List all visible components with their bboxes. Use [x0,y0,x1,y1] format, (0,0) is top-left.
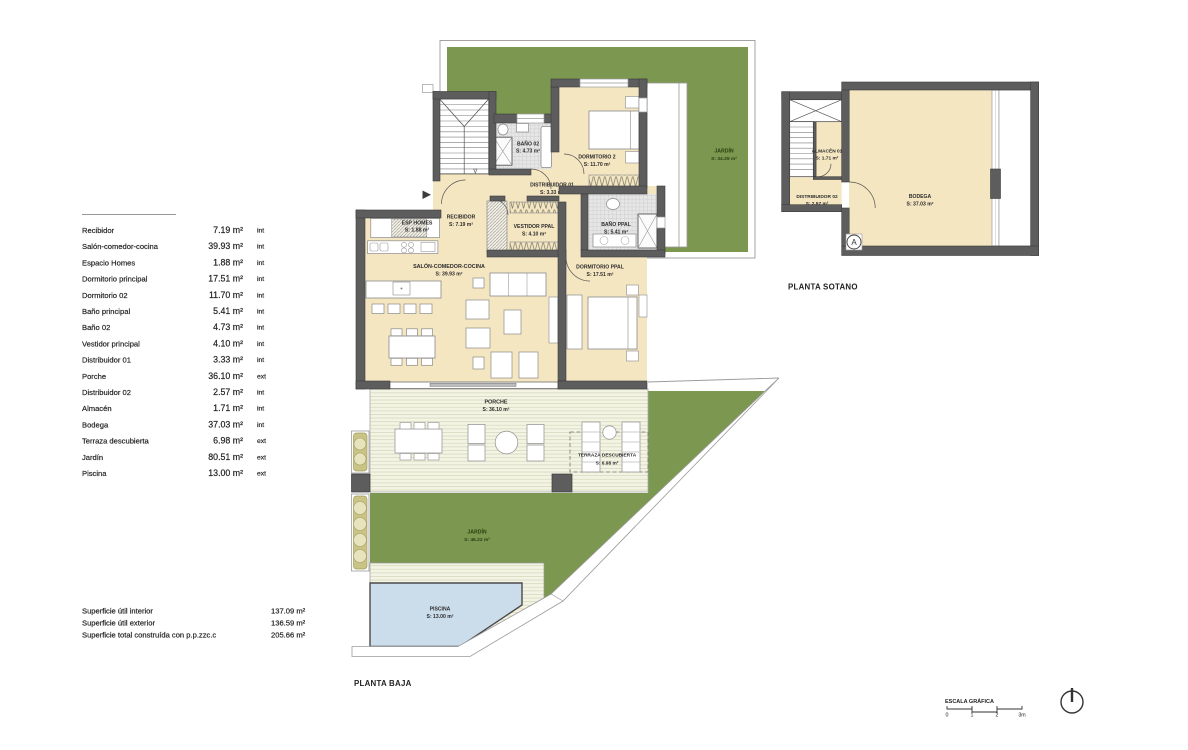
svg-text:2: 2 [996,713,999,719]
svg-text:BAÑO 02: BAÑO 02 [517,141,539,148]
svg-text:1.88 m²: 1.88 m² [213,257,243,267]
svg-text:Baño 02: Baño 02 [82,323,110,332]
svg-text:7.19 m²: 7.19 m² [213,225,243,235]
svg-text:S: 1.71 m²: S: 1.71 m² [816,156,839,162]
svg-text:Recibidor: Recibidor [82,226,115,235]
svg-text:Baño principal: Baño principal [82,307,130,316]
svg-text:Espacio Homes: Espacio Homes [82,258,135,267]
svg-text:int: int [257,292,264,299]
svg-text:Piscina: Piscina [82,469,107,478]
svg-text:S: 11.70 m²: S: 11.70 m² [584,162,611,168]
svg-text:int: int [257,309,264,316]
svg-text:BODEGA: BODEGA [909,194,932,200]
svg-text:Superficie útil interior: Superficie útil interior [82,607,153,616]
svg-text:S: 17.51 m²: S: 17.51 m² [587,272,614,278]
svg-text:S: 13.00 m²: S: 13.00 m² [427,614,454,620]
svg-text:1: 1 [971,713,974,719]
svg-text:Vestidor principal: Vestidor principal [82,339,140,348]
svg-text:S: 34.29 m²: S: 34.29 m² [711,156,737,162]
svg-text:Dormitorio principal: Dormitorio principal [82,275,148,284]
svg-text:3.33 m²: 3.33 m² [213,355,243,365]
svg-text:int: int [257,357,264,364]
svg-text:int: int [257,390,264,397]
svg-text:int: int [257,422,264,429]
svg-text:PLANTA BAJA: PLANTA BAJA [354,679,412,688]
svg-text:int: int [257,260,264,267]
svg-text:DISTRIBUIDOR 02: DISTRIBUIDOR 02 [796,194,838,200]
svg-text:int: int [257,406,264,413]
svg-text:137.09 m²: 137.09 m² [271,607,306,616]
svg-text:5.41 m²: 5.41 m² [213,306,243,316]
svg-text:VESTIDOR PPAL: VESTIDOR PPAL [514,224,555,230]
svg-text:S: 1.88 m²: S: 1.88 m² [405,228,430,234]
svg-text:6.98 m²: 6.98 m² [213,436,243,446]
svg-text:SALÓN-COMEDOR-COCINA: SALÓN-COMEDOR-COCINA [413,262,485,270]
svg-text:S: 5.41 m²: S: 5.41 m² [604,230,628,236]
svg-text:int: int [257,276,264,283]
svg-text:S: 39.93 m²: S: 39.93 m² [436,272,463,278]
svg-text:S: 7.19 m²: S: 7.19 m² [449,222,473,228]
svg-text:ext: ext [257,438,266,445]
svg-text:37.03 m²: 37.03 m² [208,419,243,429]
svg-text:S: 6.98 m²: S: 6.98 m² [596,461,619,467]
svg-text:Bodega: Bodega [82,420,109,429]
svg-text:80.51 m²: 80.51 m² [208,452,243,462]
svg-text:Distribuidor 02: Distribuidor 02 [82,388,131,397]
svg-text:Superficie total construída co: Superficie total construída con p.p.zzc.… [82,631,216,640]
svg-text:RECIBIDOR: RECIBIDOR [447,215,476,221]
svg-text:PORCHE: PORCHE [484,400,507,406]
svg-text:int: int [257,244,264,251]
svg-text:int: int [257,325,264,332]
svg-text:S: 2.57 m²: S: 2.57 m² [806,201,829,207]
svg-text:Almacén: Almacén [82,404,112,413]
svg-text:S: 46.22 m²: S: 46.22 m² [464,537,490,543]
svg-text:S: 37.03 m²: S: 37.03 m² [907,202,934,208]
svg-text:ext: ext [257,373,266,380]
svg-text:S: 4.10 m²: S: 4.10 m² [522,232,546,238]
svg-text:int: int [257,341,264,348]
svg-text:PLANTA SOTANO: PLANTA SOTANO [788,283,858,292]
svg-text:3m: 3m [1018,713,1026,719]
svg-text:Superficie útil exterior: Superficie útil exterior [82,619,155,628]
svg-text:0: 0 [946,713,949,719]
svg-text:ext: ext [257,454,266,461]
svg-text:13.00 m²: 13.00 m² [208,468,243,478]
svg-text:DORMITORIO PPAL: DORMITORIO PPAL [576,265,624,271]
svg-text:PISCINA: PISCINA [430,607,451,613]
svg-text:DORMITORIO 2: DORMITORIO 2 [578,155,615,161]
svg-text:A: A [851,238,857,247]
svg-text:ESP HOMES: ESP HOMES [402,221,433,227]
svg-text:4.73 m²: 4.73 m² [213,322,243,332]
svg-text:36.10 m²: 36.10 m² [208,371,243,381]
svg-text:S: 4.73 m²: S: 4.73 m² [516,149,540,155]
svg-text:JARDÍN: JARDÍN [714,147,734,155]
svg-text:2.57 m²: 2.57 m² [213,387,243,397]
svg-text:Porche: Porche [82,372,106,381]
svg-text:4.10 m²: 4.10 m² [213,338,243,348]
svg-text:Salón-comedor-cocina: Salón-comedor-cocina [82,242,159,251]
svg-text:205.66 m²: 205.66 m² [271,631,306,640]
svg-text:Distribuidor 01: Distribuidor 01 [82,356,131,365]
svg-text:Jardín: Jardín [82,453,103,462]
svg-text:11.70 m²: 11.70 m² [209,290,243,300]
svg-text:JARDÍN: JARDÍN [467,528,487,536]
svg-text:Dormitorio 02: Dormitorio 02 [82,291,128,300]
svg-text:BAÑO PPAL: BAÑO PPAL [601,221,631,228]
svg-text:39.93 m²: 39.93 m² [208,241,243,251]
svg-text:TERRAZA DESCUBIERTA: TERRAZA DESCUBIERTA [578,453,637,459]
svg-text:ESCALA GRÁFICA: ESCALA GRÁFICA [945,698,994,705]
svg-text:1.71 m²: 1.71 m² [213,403,243,413]
svg-text:17.51 m²: 17.51 m² [208,274,243,284]
svg-text:136.59 m²: 136.59 m² [271,619,306,628]
svg-text:Terraza descubierta: Terraza descubierta [82,437,149,446]
svg-text:S: 36.10 m²: S: 36.10 m² [483,407,510,413]
svg-text:ext: ext [257,471,266,478]
svg-text:int: int [257,228,264,235]
